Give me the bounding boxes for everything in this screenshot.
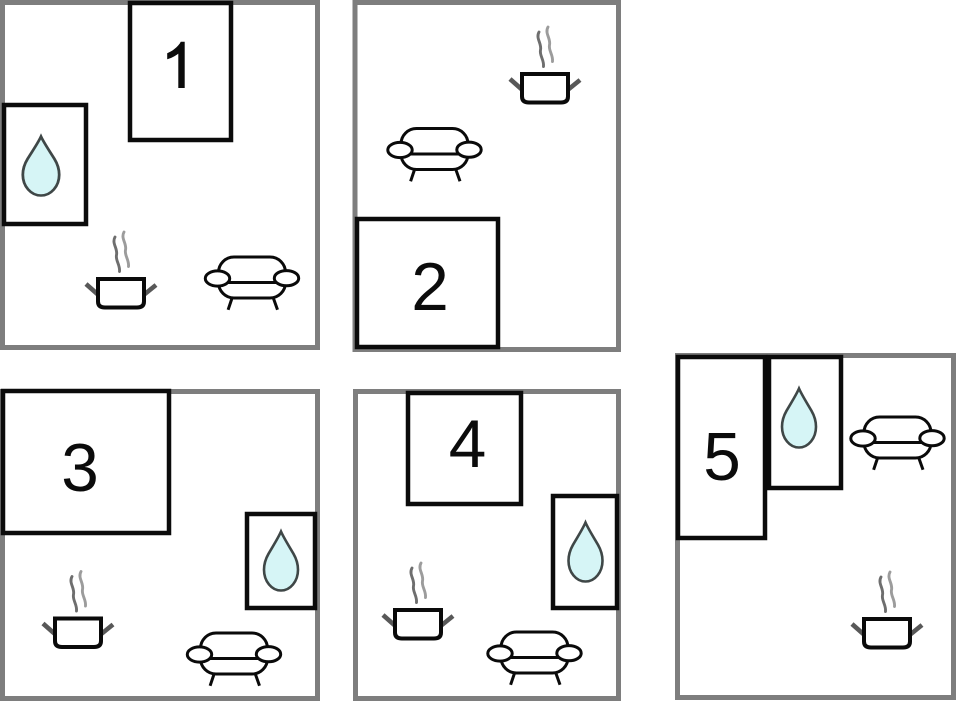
svg-text:4: 4 — [449, 407, 487, 482]
svg-text:2: 2 — [411, 250, 449, 325]
svg-text:3: 3 — [61, 431, 99, 506]
svg-text:5: 5 — [703, 420, 741, 495]
